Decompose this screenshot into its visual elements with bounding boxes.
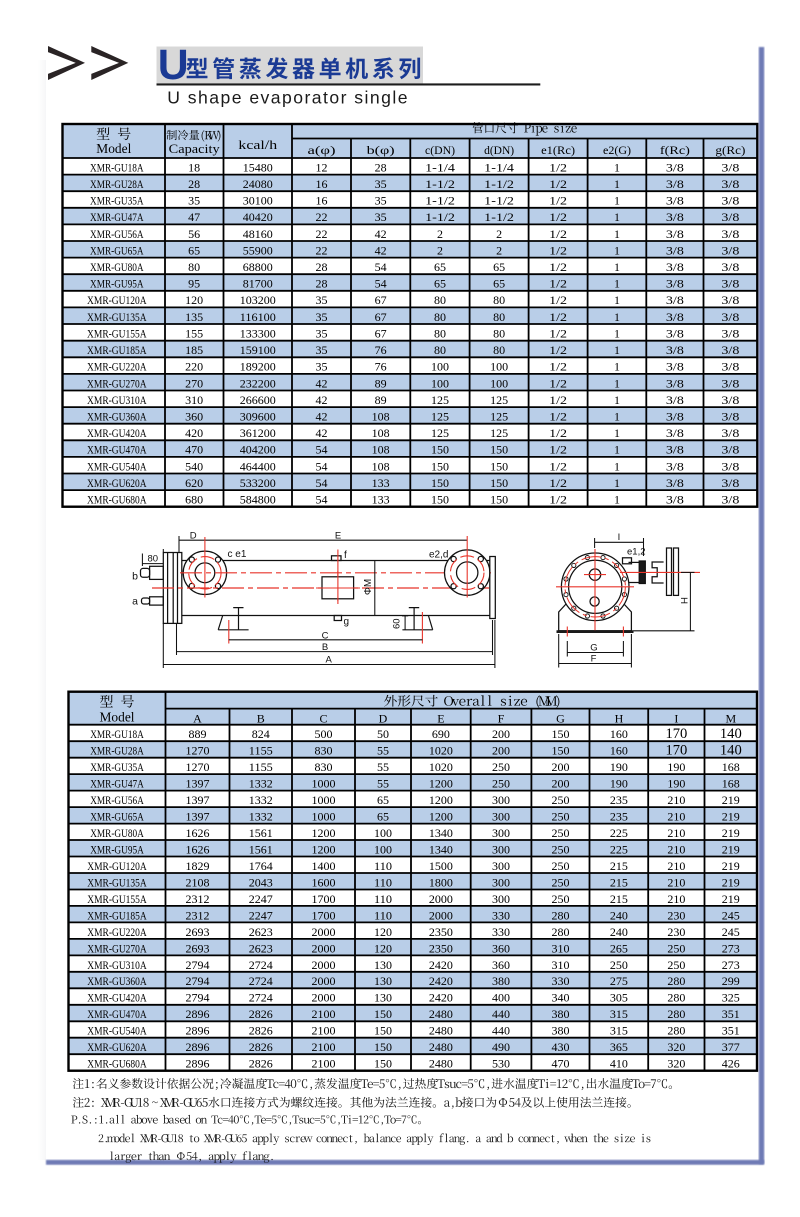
- svg-text:235: 235: [610, 810, 628, 824]
- svg-text:1/2: 1/2: [549, 260, 567, 274]
- svg-text:1-1/2: 1-1/2: [484, 194, 514, 208]
- svg-text:35: 35: [316, 310, 328, 324]
- svg-text:2108: 2108: [186, 875, 210, 889]
- svg-text:430: 430: [552, 1040, 570, 1054]
- svg-text:299: 299: [722, 974, 740, 988]
- svg-text:190: 190: [610, 760, 628, 774]
- svg-text:125: 125: [431, 426, 449, 440]
- svg-text:35: 35: [375, 177, 387, 191]
- svg-text:3/8: 3/8: [721, 476, 739, 490]
- svg-text:300: 300: [492, 842, 510, 856]
- svg-text:275: 275: [610, 974, 628, 988]
- svg-text:210: 210: [667, 875, 685, 889]
- svg-text:e1,2: e1,2: [627, 547, 646, 558]
- svg-text:2247: 2247: [249, 892, 273, 906]
- svg-text:3/8: 3/8: [666, 243, 684, 257]
- svg-text:215: 215: [610, 892, 628, 906]
- svg-text:219: 219: [722, 875, 740, 889]
- svg-text:XMR-GU65A: XMR-GU65A: [90, 810, 144, 824]
- svg-text:1829: 1829: [186, 859, 210, 873]
- svg-text:1/2: 1/2: [549, 393, 567, 407]
- svg-text:16: 16: [316, 177, 328, 191]
- svg-text:XMR-GU155A: XMR-GU155A: [87, 326, 147, 340]
- svg-text:110: 110: [374, 875, 392, 889]
- svg-text:28: 28: [316, 277, 328, 291]
- svg-text:A: A: [326, 655, 333, 666]
- svg-text:1270: 1270: [186, 744, 210, 758]
- svg-text:XMR-GU35A: XMR-GU35A: [90, 760, 144, 774]
- svg-text:22: 22: [316, 210, 328, 224]
- svg-text:300: 300: [492, 875, 510, 889]
- svg-text:D: D: [190, 531, 197, 542]
- svg-text:3/8: 3/8: [666, 476, 684, 490]
- svg-text:C: C: [319, 711, 327, 725]
- svg-text:2480: 2480: [429, 1007, 453, 1021]
- svg-text:1: 1: [614, 177, 620, 191]
- svg-text:361200: 361200: [240, 426, 276, 440]
- svg-text:1000: 1000: [312, 777, 336, 791]
- svg-text:2480: 2480: [429, 1024, 453, 1038]
- svg-text:80: 80: [188, 260, 200, 274]
- svg-text:1800: 1800: [429, 875, 453, 889]
- svg-text:g: g: [344, 617, 350, 628]
- svg-text:108: 108: [372, 426, 390, 440]
- svg-text:240: 240: [610, 925, 628, 939]
- svg-text:3/8: 3/8: [721, 426, 739, 440]
- svg-text:54: 54: [375, 277, 387, 291]
- svg-text:80: 80: [434, 343, 446, 357]
- svg-text:310: 310: [552, 941, 570, 955]
- svg-text:110: 110: [374, 892, 392, 906]
- svg-text:3/8: 3/8: [666, 426, 684, 440]
- svg-text:55: 55: [377, 744, 389, 758]
- svg-text:219: 219: [722, 810, 740, 824]
- svg-text:1: 1: [614, 210, 620, 224]
- svg-text:2794: 2794: [186, 958, 210, 972]
- svg-text:3/8: 3/8: [721, 227, 739, 241]
- svg-text:3/8: 3/8: [666, 194, 684, 208]
- svg-text:1200: 1200: [312, 842, 336, 856]
- svg-text:55: 55: [377, 760, 389, 774]
- svg-text:1332: 1332: [249, 810, 273, 824]
- svg-text:824: 824: [252, 727, 270, 741]
- svg-text:108: 108: [372, 443, 390, 457]
- svg-text:1020: 1020: [429, 760, 453, 774]
- svg-text:1: 1: [614, 293, 620, 307]
- svg-text:XMR-GU470A: XMR-GU470A: [87, 443, 147, 457]
- svg-text:1397: 1397: [186, 793, 210, 807]
- svg-text:XMR-GU680A: XMR-GU680A: [87, 1057, 147, 1071]
- svg-text:e2,d: e2,d: [429, 550, 448, 561]
- svg-text:365: 365: [610, 1040, 628, 1054]
- svg-text:3/8: 3/8: [666, 410, 684, 424]
- svg-text:150: 150: [552, 727, 570, 741]
- svg-text:XMR-GU620A: XMR-GU620A: [87, 1040, 147, 1054]
- svg-text:1/2: 1/2: [549, 177, 567, 191]
- svg-text:XMR-GU155A: XMR-GU155A: [87, 892, 147, 906]
- svg-text:55: 55: [377, 777, 389, 791]
- svg-text:2420: 2420: [429, 974, 453, 988]
- svg-text:540: 540: [185, 459, 203, 473]
- svg-text:3/8: 3/8: [721, 326, 739, 340]
- svg-text:1/2: 1/2: [549, 443, 567, 457]
- svg-text:1/2: 1/2: [549, 160, 567, 174]
- svg-text:170: 170: [665, 726, 687, 742]
- svg-text:500: 500: [315, 727, 333, 741]
- svg-text:76: 76: [375, 360, 387, 374]
- svg-text:68800: 68800: [243, 260, 273, 274]
- svg-text:67: 67: [375, 310, 387, 324]
- svg-text:325: 325: [722, 991, 740, 1005]
- svg-text:54: 54: [316, 493, 328, 507]
- svg-text:100: 100: [374, 842, 392, 856]
- svg-text:100: 100: [431, 360, 449, 374]
- svg-text:56: 56: [188, 227, 200, 241]
- svg-text:1270: 1270: [186, 760, 210, 774]
- svg-text:116100: 116100: [240, 310, 276, 324]
- svg-text:1626: 1626: [186, 842, 210, 856]
- svg-text:250: 250: [552, 842, 570, 856]
- svg-text:250: 250: [492, 777, 510, 791]
- svg-text:2312: 2312: [186, 908, 210, 922]
- svg-text:1-1/2: 1-1/2: [484, 177, 514, 191]
- svg-text:Model: Model: [100, 709, 135, 724]
- svg-text:80: 80: [148, 554, 159, 565]
- svg-text:2000: 2000: [429, 892, 453, 906]
- svg-text:1: 1: [614, 360, 620, 374]
- svg-text:219: 219: [722, 842, 740, 856]
- svg-text:3/8: 3/8: [721, 260, 739, 274]
- svg-text:360: 360: [492, 941, 510, 955]
- svg-text:210: 210: [667, 859, 685, 873]
- svg-text:35: 35: [316, 293, 328, 307]
- svg-text:kcal/h: kcal/h: [238, 138, 277, 152]
- svg-text:270: 270: [185, 376, 203, 390]
- svg-text:67: 67: [375, 326, 387, 340]
- svg-text:2043: 2043: [249, 875, 273, 889]
- svg-text:309600: 309600: [240, 410, 276, 424]
- svg-text:1200: 1200: [429, 810, 453, 824]
- svg-text:30100: 30100: [243, 194, 273, 208]
- svg-text:240: 240: [610, 908, 628, 922]
- svg-text:310: 310: [185, 393, 203, 407]
- svg-text:125: 125: [431, 410, 449, 424]
- svg-text:f(Rc): f(Rc): [660, 143, 690, 157]
- svg-text:3/8: 3/8: [666, 393, 684, 407]
- svg-text:130: 130: [374, 991, 392, 1005]
- svg-text:1000: 1000: [312, 810, 336, 824]
- svg-text:200: 200: [492, 727, 510, 741]
- svg-text:2350: 2350: [429, 941, 453, 955]
- svg-text:2: 2: [496, 227, 502, 241]
- svg-text:150: 150: [490, 443, 508, 457]
- svg-text:76: 76: [375, 343, 387, 357]
- svg-text:219: 219: [722, 892, 740, 906]
- svg-text:A: A: [193, 711, 202, 725]
- svg-text:150: 150: [374, 1057, 392, 1071]
- svg-text:15480: 15480: [243, 160, 273, 174]
- svg-text:Capacity: Capacity: [169, 142, 221, 156]
- svg-text:219: 219: [722, 826, 740, 840]
- svg-text:320: 320: [667, 1057, 685, 1071]
- svg-text:XMR-GU65A: XMR-GU65A: [90, 243, 144, 257]
- svg-text:a: a: [132, 596, 138, 608]
- svg-text:530: 530: [492, 1057, 510, 1071]
- svg-text:54: 54: [316, 443, 328, 457]
- svg-text:I: I: [674, 711, 678, 725]
- svg-text:2794: 2794: [186, 991, 210, 1005]
- svg-text:1/2: 1/2: [549, 293, 567, 307]
- svg-text:125: 125: [490, 410, 508, 424]
- svg-text:2000: 2000: [312, 925, 336, 939]
- svg-text:3/8: 3/8: [721, 493, 739, 507]
- svg-text:24080: 24080: [243, 177, 273, 191]
- svg-text:2794: 2794: [186, 974, 210, 988]
- svg-text:42: 42: [316, 410, 328, 424]
- svg-text:2100: 2100: [312, 1057, 336, 1071]
- svg-text:360: 360: [185, 410, 203, 424]
- svg-text:80: 80: [434, 310, 446, 324]
- svg-text:48160: 48160: [243, 227, 273, 241]
- svg-text:2350: 2350: [429, 925, 453, 939]
- svg-text:215: 215: [610, 875, 628, 889]
- svg-text:XMR-GU28A: XMR-GU28A: [90, 177, 144, 191]
- svg-text:65: 65: [434, 277, 446, 291]
- svg-text:2693: 2693: [186, 925, 210, 939]
- svg-text:351: 351: [722, 1024, 740, 1038]
- svg-text:185: 185: [185, 343, 203, 357]
- svg-text:3/8: 3/8: [666, 210, 684, 224]
- svg-text:150: 150: [431, 459, 449, 473]
- svg-text:140: 140: [720, 743, 742, 759]
- svg-text:150: 150: [374, 1024, 392, 1038]
- svg-text:130: 130: [374, 974, 392, 988]
- svg-text:200: 200: [552, 760, 570, 774]
- svg-text:2: 2: [496, 243, 502, 257]
- svg-text:2000: 2000: [312, 991, 336, 1005]
- svg-text:2: 2: [437, 243, 443, 257]
- svg-text:3/8: 3/8: [666, 493, 684, 507]
- svg-text:108: 108: [372, 410, 390, 424]
- svg-text:100: 100: [490, 376, 508, 390]
- svg-text:XMR-GU35A: XMR-GU35A: [90, 194, 144, 208]
- svg-text:1: 1: [614, 227, 620, 241]
- svg-text:35: 35: [375, 194, 387, 208]
- svg-text:103200: 103200: [240, 293, 276, 307]
- svg-text:c e1: c e1: [228, 549, 247, 560]
- svg-text:35: 35: [316, 360, 328, 374]
- svg-text:120: 120: [185, 293, 203, 307]
- svg-text:110: 110: [374, 908, 392, 922]
- svg-text:I: I: [618, 532, 621, 543]
- svg-text:XMR-GU56A: XMR-GU56A: [90, 793, 144, 807]
- svg-text:1/2: 1/2: [549, 376, 567, 390]
- svg-text:G: G: [556, 711, 565, 725]
- svg-text:XMR-GU120A: XMR-GU120A: [87, 293, 147, 307]
- svg-text:2000: 2000: [429, 908, 453, 922]
- svg-text:464400: 464400: [240, 459, 276, 473]
- svg-text:35: 35: [316, 326, 328, 340]
- svg-text:125: 125: [431, 393, 449, 407]
- svg-text:3/8: 3/8: [721, 177, 739, 191]
- svg-text:1332: 1332: [249, 793, 273, 807]
- svg-text:47: 47: [188, 210, 200, 224]
- svg-text:XMR-GU120A: XMR-GU120A: [87, 859, 147, 873]
- svg-text:1/2: 1/2: [549, 277, 567, 291]
- svg-text:2100: 2100: [312, 1040, 336, 1054]
- svg-text:1-1/2: 1-1/2: [425, 210, 455, 224]
- svg-text:440: 440: [492, 1024, 510, 1038]
- svg-text:1700: 1700: [312, 892, 336, 906]
- svg-text:2480: 2480: [429, 1057, 453, 1071]
- svg-text:889: 889: [189, 727, 207, 741]
- svg-text:2100: 2100: [312, 1024, 336, 1038]
- svg-text:159100: 159100: [240, 343, 276, 357]
- svg-text:250: 250: [667, 958, 685, 972]
- svg-text:280: 280: [667, 1007, 685, 1021]
- svg-text:230: 230: [667, 908, 685, 922]
- svg-text:140: 140: [720, 726, 742, 742]
- svg-text:18: 18: [188, 160, 200, 174]
- svg-text:2000: 2000: [312, 958, 336, 972]
- svg-text:XMR-GU95A: XMR-GU95A: [90, 277, 144, 291]
- svg-text:XMR-GU220A: XMR-GU220A: [87, 925, 147, 939]
- svg-text:2826: 2826: [249, 1057, 273, 1071]
- svg-text:XMR-GU47A: XMR-GU47A: [90, 210, 144, 224]
- svg-text:125: 125: [490, 393, 508, 407]
- svg-text:150: 150: [431, 493, 449, 507]
- svg-text:C: C: [322, 630, 329, 641]
- svg-text:1397: 1397: [186, 810, 210, 824]
- svg-text:XMR-GU540A: XMR-GU540A: [87, 1024, 147, 1038]
- svg-text:150: 150: [490, 459, 508, 473]
- svg-text:315: 315: [610, 1007, 628, 1021]
- svg-text:3/8: 3/8: [666, 360, 684, 374]
- svg-text:XMR-GU620A: XMR-GU620A: [87, 476, 147, 490]
- svg-text:219: 219: [722, 793, 740, 807]
- svg-text:120: 120: [374, 925, 392, 939]
- svg-text:150: 150: [490, 476, 508, 490]
- svg-text:22: 22: [316, 243, 328, 257]
- svg-text:220: 220: [185, 360, 203, 374]
- svg-text:225: 225: [610, 826, 628, 840]
- svg-text:d(DN): d(DN): [484, 143, 514, 157]
- svg-text:XMR-GU18A: XMR-GU18A: [90, 160, 144, 174]
- svg-text:2000: 2000: [312, 941, 336, 955]
- svg-text:42: 42: [316, 393, 328, 407]
- svg-text:1200: 1200: [429, 793, 453, 807]
- svg-text:377: 377: [722, 1040, 740, 1054]
- svg-text:e2(G): e2(G): [603, 143, 631, 157]
- svg-text:16: 16: [316, 194, 328, 208]
- svg-text:2100: 2100: [312, 1007, 336, 1021]
- svg-text:1340: 1340: [429, 842, 453, 856]
- svg-text:160: 160: [610, 727, 628, 741]
- svg-text:2896: 2896: [186, 1040, 210, 1054]
- svg-text:190: 190: [667, 777, 685, 791]
- svg-text:1: 1: [614, 393, 620, 407]
- svg-text:130: 130: [374, 958, 392, 972]
- svg-text:150: 150: [431, 443, 449, 457]
- svg-text:80: 80: [493, 343, 505, 357]
- svg-text:XMR-GU56A: XMR-GU56A: [90, 227, 144, 241]
- svg-text:2247: 2247: [249, 908, 273, 922]
- svg-text:110: 110: [374, 859, 392, 873]
- svg-text:470: 470: [185, 443, 203, 457]
- svg-text:150: 150: [552, 744, 570, 758]
- svg-text:3/8: 3/8: [666, 443, 684, 457]
- svg-text:35: 35: [375, 210, 387, 224]
- svg-text:XMR-GU310A: XMR-GU310A: [87, 958, 147, 972]
- svg-text:3/8: 3/8: [666, 160, 684, 174]
- svg-text:360: 360: [492, 958, 510, 972]
- svg-text:1: 1: [614, 343, 620, 357]
- svg-text:300: 300: [492, 859, 510, 873]
- svg-text:1/2: 1/2: [549, 310, 567, 324]
- svg-text:190: 190: [610, 777, 628, 791]
- svg-text:420: 420: [185, 426, 203, 440]
- svg-text:XMR-GU95A: XMR-GU95A: [90, 842, 144, 856]
- svg-text:133: 133: [372, 493, 390, 507]
- svg-text:1400: 1400: [312, 859, 336, 873]
- svg-text:1: 1: [614, 277, 620, 291]
- svg-text:42: 42: [375, 243, 387, 257]
- svg-text:1561: 1561: [249, 842, 273, 856]
- svg-text:280: 280: [667, 991, 685, 1005]
- svg-text:250: 250: [492, 760, 510, 774]
- svg-text:2826: 2826: [249, 1024, 273, 1038]
- svg-text:210: 210: [667, 826, 685, 840]
- svg-text:1/2: 1/2: [549, 194, 567, 208]
- svg-text:219: 219: [722, 859, 740, 873]
- svg-text:XMR-GU28A: XMR-GU28A: [90, 744, 144, 758]
- svg-text:XMR-GU310A: XMR-GU310A: [87, 393, 147, 407]
- svg-text:3/8: 3/8: [721, 410, 739, 424]
- svg-text:3/8: 3/8: [666, 343, 684, 357]
- svg-text:3/8: 3/8: [666, 376, 684, 390]
- svg-text:1/2: 1/2: [549, 243, 567, 257]
- svg-text:380: 380: [552, 1024, 570, 1038]
- svg-text:265: 265: [610, 941, 628, 955]
- svg-text:80: 80: [434, 293, 446, 307]
- svg-text:210: 210: [667, 793, 685, 807]
- svg-text:125: 125: [490, 426, 508, 440]
- svg-text:1/2: 1/2: [549, 343, 567, 357]
- svg-text:2420: 2420: [429, 991, 453, 1005]
- svg-text:b: b: [132, 571, 138, 583]
- svg-text:3/8: 3/8: [666, 260, 684, 274]
- svg-text:1: 1: [614, 426, 620, 440]
- svg-text:B: B: [257, 711, 265, 725]
- svg-text:1600: 1600: [312, 875, 336, 889]
- svg-text:1/2: 1/2: [549, 210, 567, 224]
- svg-text:168: 168: [722, 777, 740, 791]
- svg-text:3/8: 3/8: [721, 243, 739, 257]
- svg-text:280: 280: [667, 1024, 685, 1038]
- svg-text:280: 280: [552, 925, 570, 939]
- svg-text:54: 54: [375, 260, 387, 274]
- svg-text:XMR-GU185A: XMR-GU185A: [87, 908, 147, 922]
- svg-text:Model: Model: [96, 141, 131, 156]
- svg-text:2896: 2896: [186, 1007, 210, 1021]
- svg-text:330: 330: [492, 925, 510, 939]
- svg-text:100: 100: [431, 376, 449, 390]
- svg-text:2724: 2724: [249, 958, 273, 972]
- svg-text:200: 200: [552, 777, 570, 791]
- svg-text:H: H: [680, 597, 691, 604]
- svg-text:3/8: 3/8: [721, 443, 739, 457]
- svg-text:80: 80: [434, 326, 446, 340]
